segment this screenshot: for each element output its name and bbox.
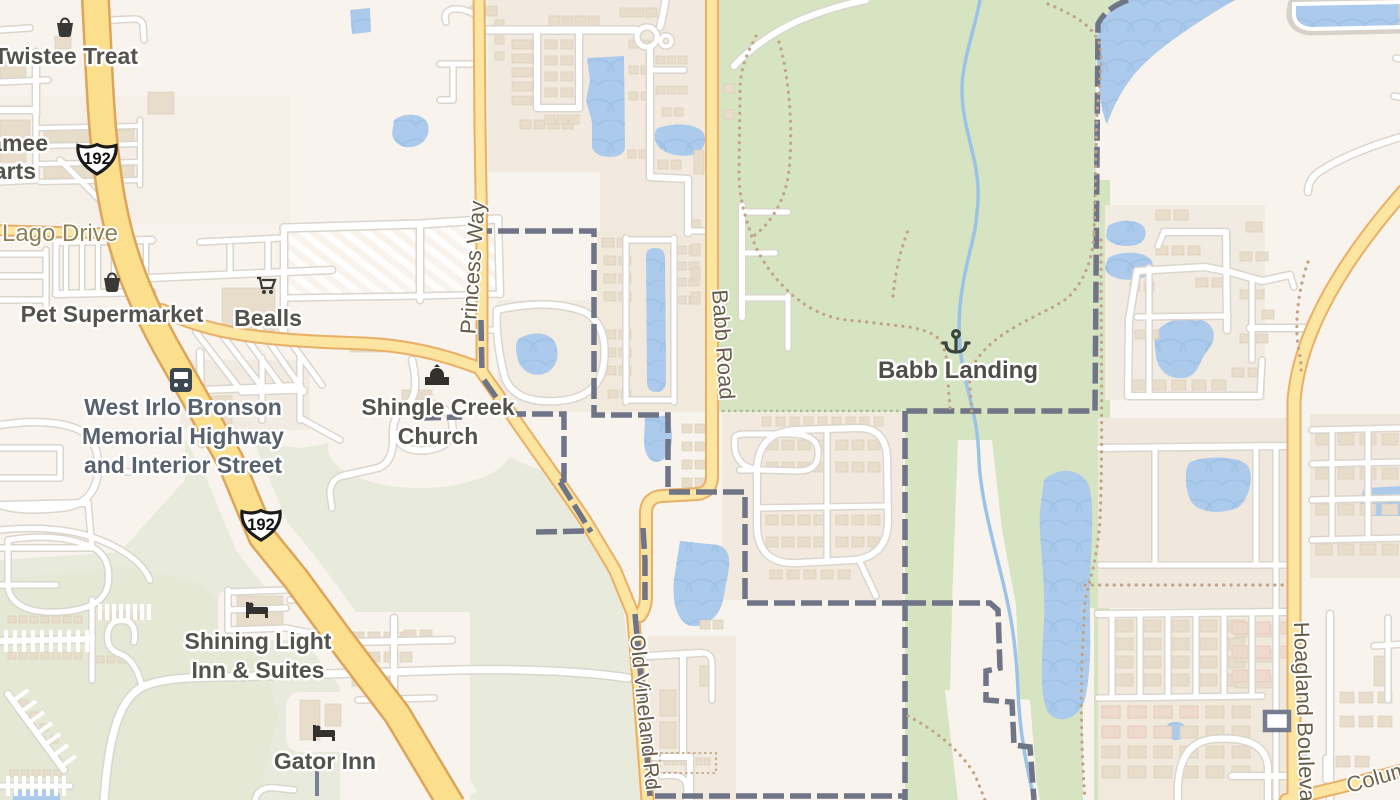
svg-text:amee: amee xyxy=(0,130,48,156)
svg-text:Shining Light: Shining Light xyxy=(185,628,332,654)
svg-text:192: 192 xyxy=(83,150,111,168)
svg-text:and Interior Street: and Interior Street xyxy=(84,452,282,478)
svg-text:Church: Church xyxy=(398,423,479,449)
svg-text:Pet Supermarket: Pet Supermarket xyxy=(21,301,204,327)
svg-text:Lago Drive: Lago Drive xyxy=(2,220,118,247)
svg-text:arts: arts xyxy=(0,158,36,184)
svg-text:Twistee Treat: Twistee Treat xyxy=(0,43,138,69)
svg-text:Memorial Highway: Memorial Highway xyxy=(82,423,284,449)
svg-text:Gator Inn: Gator Inn xyxy=(274,748,376,774)
svg-text:Bealls: Bealls xyxy=(234,305,302,331)
svg-text:192: 192 xyxy=(247,516,275,534)
svg-text:Shingle Creek: Shingle Creek xyxy=(361,394,515,420)
svg-text:West Irlo Bronson: West Irlo Bronson xyxy=(84,394,282,420)
svg-text:Babb Landing: Babb Landing xyxy=(878,357,1038,384)
svg-text:Inn & Suites: Inn & Suites xyxy=(192,657,325,683)
